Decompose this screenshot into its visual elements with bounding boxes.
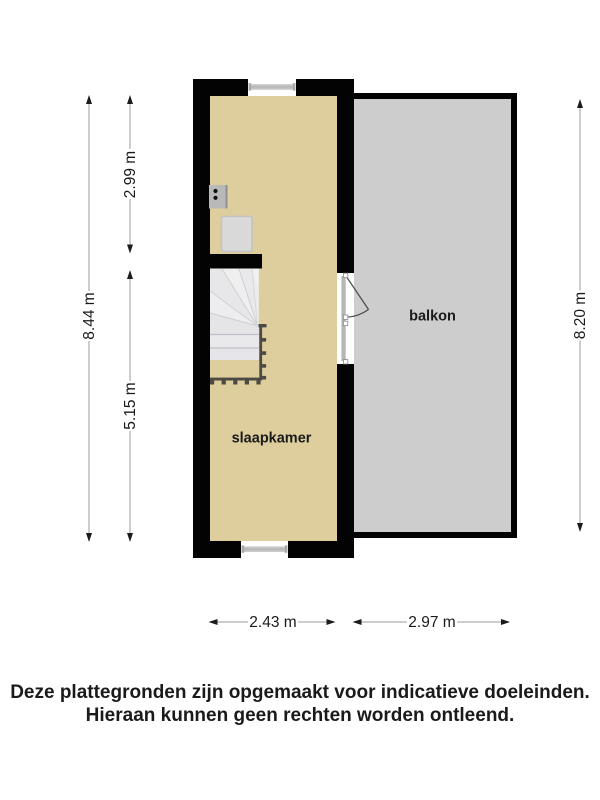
- svg-text:2.43 m: 2.43 m: [249, 614, 296, 631]
- svg-text:Hieraan kunnen geen rechten wo: Hieraan kunnen geen rechten worden ontle…: [86, 705, 515, 726]
- svg-text:8.20 m: 8.20 m: [572, 292, 589, 339]
- svg-text:5.15 m: 5.15 m: [122, 382, 139, 429]
- svg-text:2.97 m: 2.97 m: [408, 614, 455, 631]
- svg-text:slaapkamer: slaapkamer: [232, 431, 312, 447]
- svg-text:Deze plattegronden zijn opgema: Deze plattegronden zijn opgemaakt voor i…: [10, 682, 590, 703]
- svg-text:2.99 m: 2.99 m: [122, 151, 139, 198]
- svg-text:8.44 m: 8.44 m: [81, 292, 98, 339]
- svg-text:balkon: balkon: [409, 309, 456, 325]
